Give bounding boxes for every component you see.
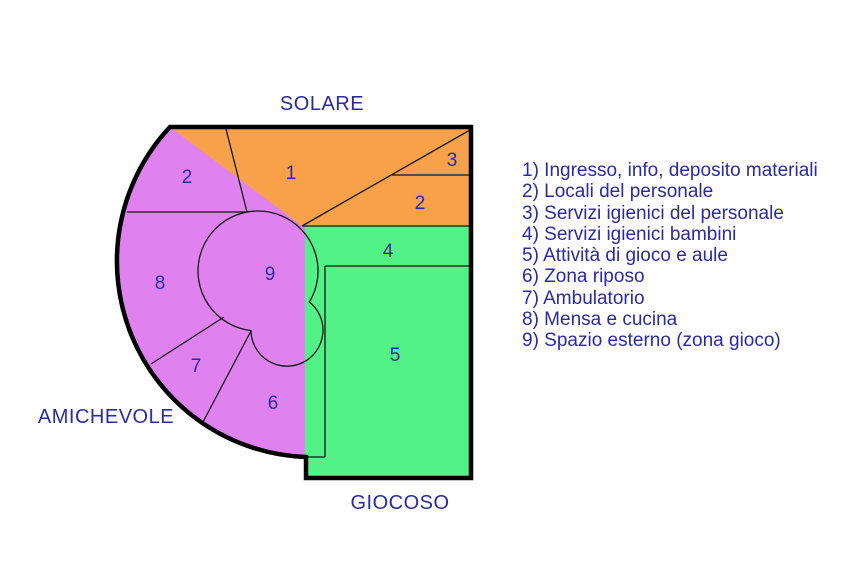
- legend-item-9: 9) Spazio esterno (zona gioco): [522, 330, 842, 351]
- zone-title-amichevole: AMICHEVOLE: [38, 406, 174, 428]
- region3-number: 3: [447, 150, 458, 171]
- legend-item-3: 3) Servizi igienici del personale: [522, 203, 842, 224]
- region8-number: 8: [155, 273, 166, 294]
- legend-item-1: 1) Ingresso, info, deposito materiali: [522, 160, 842, 181]
- region5-number: 5: [390, 345, 401, 366]
- region2-top-number: 2: [182, 167, 193, 188]
- legend-item-8: 8) Mensa e cucina: [522, 309, 842, 330]
- legend-item-4: 4) Servizi igienici bambini: [522, 224, 842, 245]
- region4-number: 4: [383, 241, 394, 262]
- zone-giocoso-fill: [305, 226, 471, 478]
- legend-item-2: 2) Locali del personale: [522, 181, 842, 202]
- zone-title-giocoso: GIOCOSO: [350, 492, 449, 514]
- legend: 1) Ingresso, info, deposito materiali 2)…: [522, 160, 842, 352]
- region2-right-number: 2: [415, 193, 426, 214]
- zoning-diagram-canvas: 1 2 3 2 4 9 8 5 7 6 SOLARE AMICHEVOLE GI…: [0, 0, 849, 566]
- legend-item-7: 7) Ambulatorio: [522, 288, 842, 309]
- region1-number: 1: [286, 163, 297, 184]
- region7-number: 7: [191, 356, 202, 377]
- zone-title-solare: SOLARE: [280, 93, 364, 115]
- region9-number: 9: [265, 264, 276, 285]
- region6-number: 6: [268, 393, 279, 414]
- legend-item-5: 5) Attività di gioco e aule: [522, 245, 842, 266]
- legend-item-6: 6) Zona riposo: [522, 266, 842, 287]
